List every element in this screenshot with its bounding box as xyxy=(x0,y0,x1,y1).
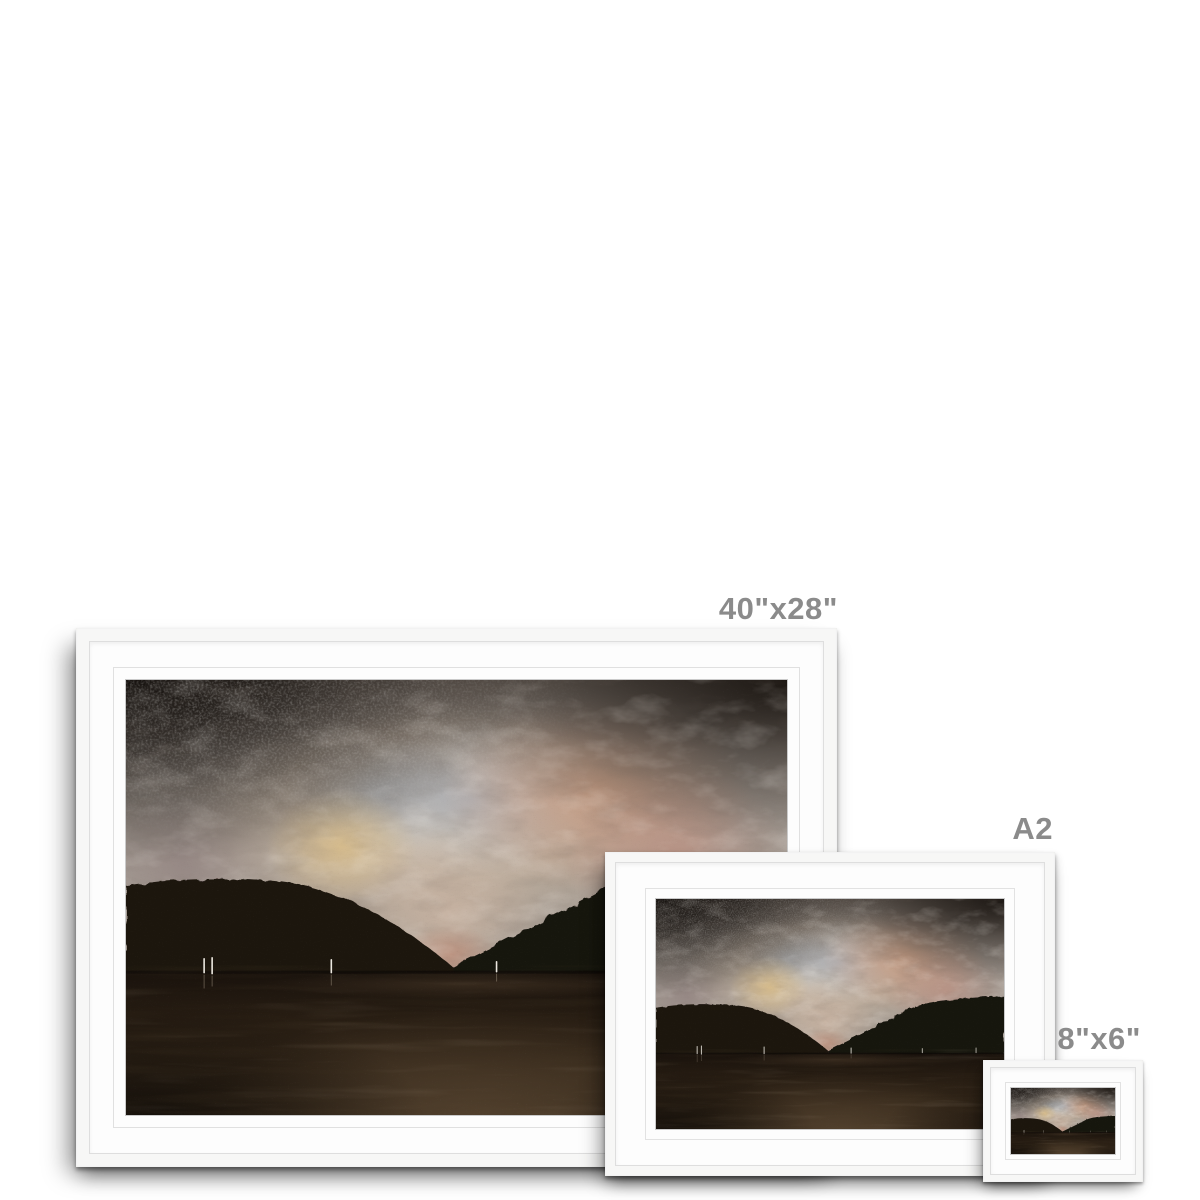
size-label-8x6: 8"x6" xyxy=(1057,1023,1141,1054)
frame-mat-a2 xyxy=(615,862,1045,1166)
loch-painting-artwork-a2 xyxy=(656,899,1004,1129)
size-label-40x28: 40"x28" xyxy=(719,593,838,624)
framed-print-8x6 xyxy=(983,1060,1143,1182)
size-label-a2: A2 xyxy=(1012,813,1053,844)
framed-print-size-mockup: 40"x28" A2 8"x6" xyxy=(0,0,1200,1200)
frame-mat-small xyxy=(990,1067,1136,1175)
loch-painting-artwork-small xyxy=(1011,1088,1115,1154)
